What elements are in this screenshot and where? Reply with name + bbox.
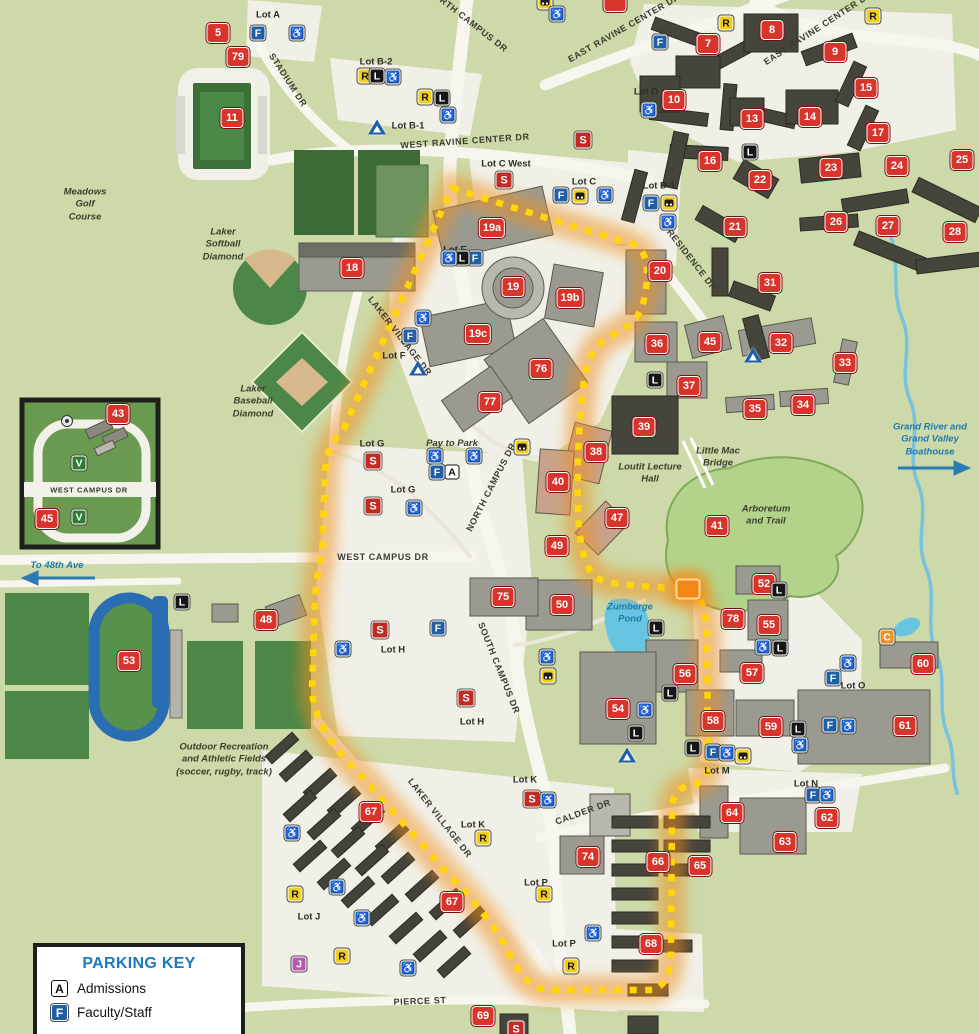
road-label: NORTH CAMPUS DR [426, 0, 509, 54]
building-badge-58: 58 [702, 711, 725, 731]
parking-badge-R: R [537, 887, 552, 902]
parking-badge-S: S [372, 622, 389, 639]
parking-badge-S: S [508, 1021, 525, 1034]
building-badge-21: 21 [724, 217, 747, 237]
place-label: Meadows Golf Course [64, 186, 107, 223]
road-label: LAKER VILLAGE DR [406, 776, 474, 859]
place-label: Zumberge Pond [607, 602, 653, 627]
parking-badge-F: F [403, 329, 418, 344]
parking-badge-F: F [823, 718, 838, 733]
building-badge-34: 34 [792, 395, 815, 415]
road-label: WEST CAMPUS DR [50, 486, 128, 495]
parking-badge-F: F [653, 35, 668, 50]
building-badge-5: 5 [207, 23, 230, 43]
wheelchair-accessible-icon: ♿ [330, 880, 345, 895]
building-badge-35: 35 [744, 399, 767, 419]
wheelchair-accessible-icon: ♿ [386, 70, 401, 85]
building-badge-53: 53 [118, 651, 141, 671]
wheelchair-accessible-icon: ♿ [285, 826, 300, 841]
road-label: WEST CAMPUS DR [337, 552, 428, 562]
parking-badge-R: R [335, 949, 350, 964]
parking-badge-R: R [719, 16, 734, 31]
lot-label: Lot F [382, 351, 405, 362]
parking-badge-S: S [458, 690, 475, 707]
parking-badge-L: L [663, 686, 678, 701]
building-badge-60: 60 [912, 654, 935, 674]
map-labels-overlay: NORTH CAMPUS DREAST RAVINE CENTER DREAST… [0, 0, 979, 1034]
wheelchair-accessible-icon: ♿ [467, 449, 482, 464]
wheelchair-accessible-icon: ♿ [540, 650, 555, 665]
parking-badge-F: F [706, 745, 721, 760]
parking-badge-L: L [175, 595, 190, 610]
building-badge-62: 62 [816, 808, 839, 828]
parking-key: PARKING KEY AAdmissionsFFaculty/Staff [33, 943, 245, 1034]
building-badge-68: 68 [640, 934, 663, 954]
parking-badge-L: L [773, 641, 788, 656]
building-badge-23: 23 [820, 158, 843, 178]
building-badge-8: 8 [761, 20, 784, 40]
place-label: To 48th Ave [30, 560, 83, 572]
parking-badge-F: F [431, 621, 446, 636]
bus-stop-icon [541, 669, 556, 684]
road-label: PIERCE ST [393, 995, 446, 1007]
building-badge-41: 41 [706, 516, 729, 536]
place-label: Loutit Lecture Hall [618, 462, 681, 487]
wheelchair-accessible-icon: ♿ [820, 788, 835, 803]
lot-label: Lot J [298, 912, 321, 923]
parking-badge-A: A [445, 465, 460, 480]
building-badge-38: 38 [585, 442, 608, 462]
building-badge-16: 16 [699, 151, 722, 171]
building-badge-64: 64 [721, 803, 744, 823]
building-badge-26: 26 [825, 212, 848, 232]
building-badge-15: 15 [855, 78, 878, 98]
parking-badge-L: L [629, 726, 644, 741]
emergency-phone-icon [409, 361, 427, 376]
building-badge-unreadable [604, 0, 627, 12]
wheelchair-accessible-icon: ♿ [638, 703, 653, 718]
building-badge-55: 55 [758, 615, 781, 635]
parking-key-entry: AAdmissions [51, 980, 241, 997]
road-label: WEST RAVINE CENTER DR [400, 131, 530, 150]
parking-key-badge-F: F [51, 1004, 68, 1021]
parking-key-badge-A: A [51, 980, 68, 997]
building-badge-54: 54 [607, 699, 630, 719]
wheelchair-accessible-icon: ♿ [416, 311, 431, 326]
parking-badge-C: C [880, 630, 895, 645]
wheelchair-accessible-icon: ♿ [793, 738, 808, 753]
building-badge-75: 75 [492, 587, 515, 607]
place-label: Arboretum and Trail [742, 504, 791, 529]
emergency-phone-icon [744, 348, 762, 363]
parking-badge-J: J [292, 957, 307, 972]
building-badge-22: 22 [749, 170, 772, 190]
building-badge-45: 45 [36, 509, 59, 529]
building-badge-50: 50 [551, 595, 574, 615]
building-badge-13: 13 [741, 109, 764, 129]
parking-badge-F: F [554, 188, 569, 203]
building-badge-7: 7 [697, 34, 720, 54]
wheelchair-accessible-icon: ♿ [428, 449, 443, 464]
campus-map: NORTH CAMPUS DREAST RAVINE CENTER DREAST… [0, 0, 979, 1034]
wheelchair-accessible-icon: ♿ [442, 251, 457, 266]
building-badge-19a: 19a [479, 218, 505, 238]
parking-badge-L: L [791, 722, 806, 737]
building-badge-76: 76 [530, 359, 553, 379]
road-label: STADIUM DR [267, 51, 309, 108]
wheelchair-accessible-icon: ♿ [642, 103, 657, 118]
emergency-phone-icon [368, 120, 386, 135]
building-badge-57: 57 [741, 663, 764, 683]
parking-badge-L: L [370, 69, 385, 84]
lot-label: Lot D-1 [643, 181, 676, 192]
place-label: Grand River and Grand Valley Boathouse [893, 421, 967, 458]
building-badge-37: 37 [678, 376, 701, 396]
building-badge-36: 36 [646, 334, 669, 354]
parking-badge-L: L [743, 145, 758, 160]
parking-badge-L: L [648, 373, 663, 388]
parking-badge-S: S [365, 498, 382, 515]
lot-label: Lot K [513, 775, 537, 786]
bus-stop-icon [736, 749, 751, 764]
parking-badge-F: F [644, 196, 659, 211]
lot-label: Lot B-1 [392, 121, 425, 132]
lot-label: Lot O [841, 681, 866, 692]
parking-key-entry: FFaculty/Staff [51, 1004, 241, 1021]
building-badge-48: 48 [255, 610, 278, 630]
emergency-phone-icon [618, 748, 636, 763]
lot-label: Lot K [461, 820, 485, 831]
road-label: CALDER DR [554, 797, 612, 826]
lot-label: Lot D [634, 87, 658, 98]
parking-badge-V: V [72, 456, 87, 471]
parking-badge-R: R [866, 9, 881, 24]
parking-badge-L: L [435, 91, 450, 106]
building-badge-17: 17 [867, 123, 890, 143]
bus-stop-icon [515, 440, 530, 455]
wheelchair-accessible-icon: ♿ [756, 640, 771, 655]
building-badge-67: 67 [360, 802, 383, 822]
building-badge-69: 69 [472, 1006, 495, 1026]
wheelchair-accessible-icon: ♿ [586, 926, 601, 941]
parking-badge-R: R [564, 959, 579, 974]
wheelchair-accessible-icon: ♿ [290, 26, 305, 41]
wheelchair-accessible-icon: ♿ [441, 108, 456, 123]
building-badge-19: 19 [502, 277, 525, 297]
lot-label: Lot H [460, 717, 484, 728]
building-badge-67: 67 [441, 892, 464, 912]
place-label: Laker Softball Diamond [203, 226, 244, 263]
parking-badge-F: F [468, 251, 483, 266]
building-badge-20: 20 [649, 261, 672, 281]
building-badge-47: 47 [606, 508, 629, 528]
parking-badge-S: S [524, 791, 541, 808]
parking-badge-S: S [365, 453, 382, 470]
lot-label: Lot C [572, 177, 596, 188]
building-badge-59: 59 [760, 717, 783, 737]
building-badge-61: 61 [894, 716, 917, 736]
lot-label: Lot G [391, 485, 416, 496]
parking-key-label: Admissions [77, 981, 146, 996]
parking-badge-L: L [772, 583, 787, 598]
building-badge-25: 25 [951, 150, 974, 170]
lot-label: Lot C West [481, 159, 530, 170]
road-label: SOUTH CAMPUS DR [476, 621, 522, 715]
building-badge-19c: 19c [465, 324, 491, 344]
lot-label: Lot M [704, 766, 729, 777]
place-label: Laker Baseball Diamond [233, 383, 274, 420]
wheelchair-accessible-icon: ♿ [336, 642, 351, 657]
parking-badge-R: R [476, 831, 491, 846]
building-badge-66: 66 [647, 852, 670, 872]
parking-badge-L: L [649, 621, 664, 636]
building-badge-9: 9 [824, 42, 847, 62]
wheelchair-accessible-icon: ♿ [598, 188, 613, 203]
building-badge-24: 24 [886, 156, 909, 176]
building-badge-65: 65 [689, 856, 712, 876]
parking-badge-L: L [455, 251, 470, 266]
building-badge-19b: 19b [557, 288, 584, 308]
wheelchair-accessible-icon: ♿ [407, 501, 422, 516]
building-badge-32: 32 [770, 333, 793, 353]
building-badge-43: 43 [107, 404, 130, 424]
parking-badge-F: F [806, 788, 821, 803]
wheelchair-accessible-icon: ♿ [355, 911, 370, 926]
building-badge-40: 40 [547, 472, 570, 492]
building-badge-39: 39 [633, 417, 656, 437]
parking-badge-F: F [430, 465, 445, 480]
building-badge-74: 74 [577, 847, 600, 867]
building-badge-78: 78 [722, 609, 745, 629]
wheelchair-accessible-icon: ♿ [550, 7, 565, 22]
parking-badge-R: R [288, 887, 303, 902]
lot-label: Lot A [256, 10, 280, 21]
place-label: Outdoor Recreation and Athletic Fields (… [176, 741, 272, 778]
building-badge-49: 49 [546, 536, 569, 556]
building-badge-56: 56 [674, 664, 697, 684]
building-badge-31: 31 [759, 273, 782, 293]
wheelchair-accessible-icon: ♿ [720, 746, 735, 761]
parking-badge-V: V [72, 510, 87, 525]
lot-label: Lot B-2 [360, 57, 393, 68]
building-badge-28: 28 [944, 222, 967, 242]
highlighted-badge [676, 579, 701, 600]
building-badge-10: 10 [663, 90, 686, 110]
building-badge-18: 18 [341, 258, 364, 278]
building-badge-33: 33 [834, 353, 857, 373]
wheelchair-accessible-icon: ♿ [841, 719, 856, 734]
building-badge-14: 14 [799, 107, 822, 127]
wheelchair-accessible-icon: ♿ [541, 793, 556, 808]
building-badge-77: 77 [479, 392, 502, 412]
building-badge-11: 11 [221, 108, 244, 128]
lot-label: Lot G [360, 439, 385, 450]
parking-badge-L: L [686, 741, 701, 756]
place-label: Little Mac Bridge [696, 446, 740, 471]
bus-stop-icon [662, 196, 677, 211]
parking-key-title: PARKING KEY [51, 955, 227, 973]
building-badge-79: 79 [227, 47, 250, 67]
building-badge-45: 45 [699, 332, 722, 352]
lot-label: Lot P [552, 939, 576, 950]
lot-label: Lot H [381, 645, 405, 656]
parking-badge-F: F [826, 671, 841, 686]
parking-badge-R: R [418, 90, 433, 105]
building-badge-27: 27 [877, 216, 900, 236]
parking-badge-F: F [251, 26, 266, 41]
building-badge-63: 63 [774, 832, 797, 852]
wheelchair-accessible-icon: ♿ [401, 961, 416, 976]
parking-badge-S: S [496, 172, 513, 189]
road-label: RESIDENCE DR [665, 227, 719, 292]
parking-badge-S: S [575, 132, 592, 149]
wheelchair-accessible-icon: ♿ [841, 656, 856, 671]
wheelchair-accessible-icon: ♿ [661, 215, 676, 230]
bus-stop-icon [573, 189, 588, 204]
parking-key-label: Faculty/Staff [77, 1005, 152, 1020]
